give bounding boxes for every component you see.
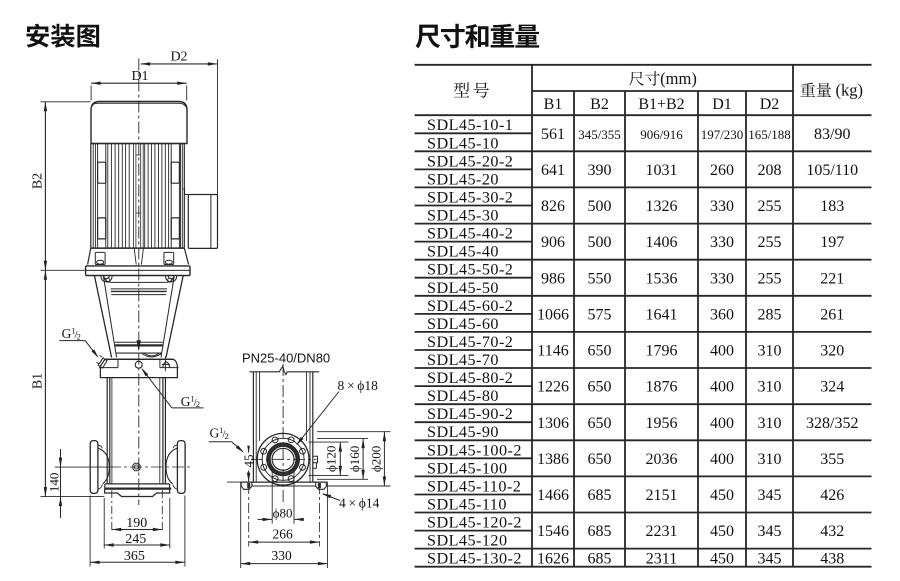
- svg-text:1406: 1406: [646, 234, 678, 251]
- svg-text:255: 255: [758, 270, 782, 287]
- svg-text:SDL45-120-2: SDL45-120-2: [427, 514, 522, 532]
- svg-text:561: 561: [541, 126, 565, 143]
- svg-text:310: 310: [758, 343, 782, 360]
- svg-text:826: 826: [541, 198, 565, 215]
- svg-text:SDL45-50-2: SDL45-50-2: [427, 261, 513, 279]
- svg-text:1626: 1626: [537, 550, 569, 567]
- svg-text:310: 310: [758, 451, 782, 468]
- svg-text:SDL45-40-2: SDL45-40-2: [427, 225, 513, 243]
- svg-text:324: 324: [820, 379, 844, 396]
- svg-text:1536: 1536: [646, 270, 678, 287]
- svg-text:SDL45-80: SDL45-80: [427, 387, 499, 405]
- svg-text:2311: 2311: [646, 550, 677, 567]
- svg-text:183: 183: [820, 198, 844, 215]
- svg-text:SDL45-110: SDL45-110: [427, 496, 507, 514]
- svg-text:2231: 2231: [646, 523, 678, 540]
- svg-text:SDL45-50: SDL45-50: [427, 279, 499, 297]
- svg-text:SDL45-110-2: SDL45-110-2: [427, 477, 521, 495]
- svg-text:260: 260: [710, 162, 734, 179]
- svg-text:685: 685: [588, 523, 612, 540]
- svg-text:285: 285: [758, 307, 782, 324]
- svg-text:360: 360: [710, 307, 734, 324]
- svg-text:2151: 2151: [646, 487, 678, 504]
- svg-text:450: 450: [710, 523, 734, 540]
- svg-text:450: 450: [710, 487, 734, 504]
- svg-text:1796: 1796: [646, 343, 678, 360]
- svg-text:310: 310: [758, 415, 782, 432]
- svg-text:D2: D2: [760, 96, 780, 113]
- svg-text:345/355: 345/355: [578, 127, 621, 142]
- svg-text:B1+B2: B1+B2: [638, 96, 684, 113]
- svg-text:SDL45-70-2: SDL45-70-2: [427, 333, 513, 351]
- svg-text:1226: 1226: [537, 379, 569, 396]
- svg-text:255: 255: [758, 198, 782, 215]
- svg-text:650: 650: [588, 343, 612, 360]
- svg-text:B1: B1: [544, 96, 563, 113]
- svg-text:SDL45-30-2: SDL45-30-2: [427, 189, 513, 207]
- svg-text:1066: 1066: [537, 307, 569, 324]
- svg-text:D1: D1: [712, 96, 732, 113]
- svg-text:641: 641: [541, 162, 565, 179]
- svg-text:SDL45-10-1: SDL45-10-1: [427, 116, 513, 134]
- svg-text:1641: 1641: [646, 307, 678, 324]
- svg-text:1386: 1386: [537, 451, 569, 468]
- svg-text:330: 330: [710, 270, 734, 287]
- svg-text:500: 500: [588, 234, 612, 251]
- svg-text:1326: 1326: [646, 198, 678, 215]
- svg-text:SDL45-40: SDL45-40: [427, 243, 499, 261]
- svg-text:SDL45-100-2: SDL45-100-2: [427, 441, 522, 459]
- svg-text:197/230: 197/230: [701, 127, 744, 142]
- svg-text:550: 550: [588, 270, 612, 287]
- svg-text:1956: 1956: [646, 415, 678, 432]
- svg-text:208: 208: [758, 162, 782, 179]
- svg-text:83/90: 83/90: [814, 126, 850, 143]
- svg-text:400: 400: [710, 415, 734, 432]
- svg-text:SDL45-20: SDL45-20: [427, 170, 499, 188]
- svg-text:320: 320: [820, 343, 844, 360]
- svg-text:SDL45-90: SDL45-90: [427, 423, 499, 441]
- svg-text:310: 310: [758, 379, 782, 396]
- svg-text:438: 438: [820, 550, 844, 567]
- svg-text:SDL45-30: SDL45-30: [427, 207, 499, 225]
- svg-text:1546: 1546: [537, 523, 569, 540]
- svg-text:1146: 1146: [537, 343, 568, 360]
- svg-text:1306: 1306: [537, 415, 569, 432]
- svg-text:1031: 1031: [646, 162, 678, 179]
- svg-text:2036: 2036: [646, 451, 678, 468]
- svg-text:SDL45-100: SDL45-100: [427, 459, 508, 477]
- svg-text:685: 685: [588, 550, 612, 567]
- svg-text:261: 261: [820, 307, 844, 324]
- svg-text:390: 390: [588, 162, 612, 179]
- svg-text:650: 650: [588, 415, 612, 432]
- svg-text:986: 986: [541, 270, 565, 287]
- svg-text:345: 345: [758, 523, 782, 540]
- svg-text:SDL45-10: SDL45-10: [427, 134, 499, 152]
- svg-text:450: 450: [710, 550, 734, 567]
- svg-text:906: 906: [541, 234, 565, 251]
- svg-text:SDL45-130-2: SDL45-130-2: [427, 549, 522, 567]
- svg-text:426: 426: [820, 487, 844, 504]
- svg-text:330: 330: [710, 234, 734, 251]
- svg-text:345: 345: [758, 487, 782, 504]
- svg-text:432: 432: [820, 523, 844, 540]
- svg-text:255: 255: [758, 234, 782, 251]
- svg-text:(mm): (mm): [660, 69, 697, 88]
- svg-text:345: 345: [758, 550, 782, 567]
- svg-text:SDL45-120: SDL45-120: [427, 532, 508, 550]
- svg-text:SDL45-60-2: SDL45-60-2: [427, 297, 513, 315]
- svg-text:SDL45-70: SDL45-70: [427, 351, 499, 369]
- svg-text:650: 650: [588, 379, 612, 396]
- svg-text:(kg): (kg): [836, 81, 864, 100]
- svg-text:SDL45-20-2: SDL45-20-2: [427, 152, 513, 170]
- svg-text:221: 221: [820, 270, 844, 287]
- svg-text:105/110: 105/110: [806, 162, 858, 179]
- svg-text:330: 330: [710, 198, 734, 215]
- svg-text:400: 400: [710, 343, 734, 360]
- svg-text:400: 400: [710, 451, 734, 468]
- svg-text:SDL45-60: SDL45-60: [427, 315, 499, 333]
- svg-text:B2: B2: [590, 96, 609, 113]
- svg-text:355: 355: [820, 451, 844, 468]
- svg-text:SDL45-80-2: SDL45-80-2: [427, 369, 513, 387]
- svg-text:1876: 1876: [646, 379, 678, 396]
- svg-text:650: 650: [588, 451, 612, 468]
- svg-text:1466: 1466: [537, 487, 569, 504]
- svg-text:197: 197: [820, 234, 844, 251]
- svg-text:575: 575: [588, 307, 612, 324]
- svg-text:500: 500: [588, 198, 612, 215]
- svg-text:685: 685: [588, 487, 612, 504]
- svg-text:165/188: 165/188: [748, 127, 791, 142]
- svg-text:906/916: 906/916: [640, 127, 683, 142]
- svg-text:328/352: 328/352: [806, 415, 858, 432]
- svg-text:SDL45-90-2: SDL45-90-2: [427, 405, 513, 423]
- svg-text:400: 400: [710, 379, 734, 396]
